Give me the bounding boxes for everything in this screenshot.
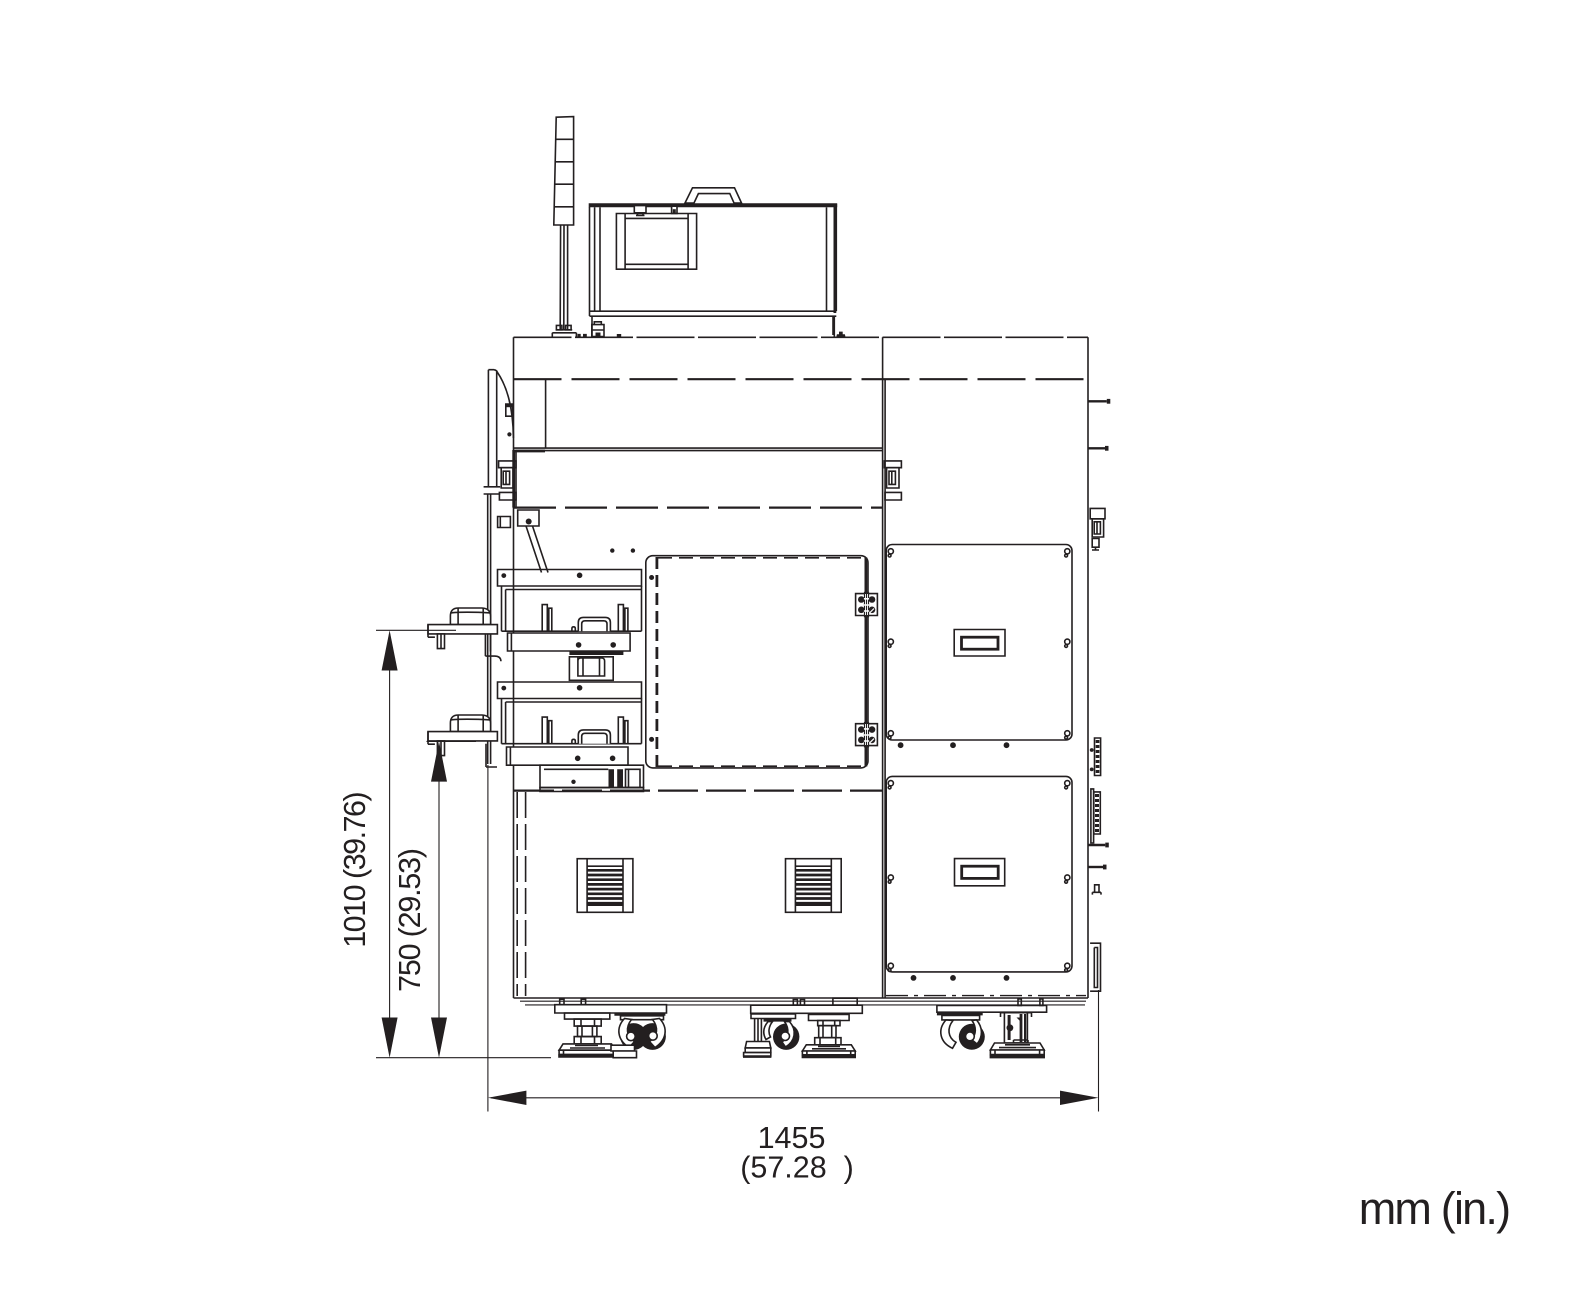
svg-text:1010 (39.76): 1010 (39.76) — [338, 792, 372, 947]
svg-text:mm (in.): mm (in.) — [1359, 1183, 1510, 1234]
svg-text:(57.28 ): (57.28 ) — [740, 1151, 854, 1185]
svg-text:750 (29.53): 750 (29.53) — [393, 849, 427, 992]
